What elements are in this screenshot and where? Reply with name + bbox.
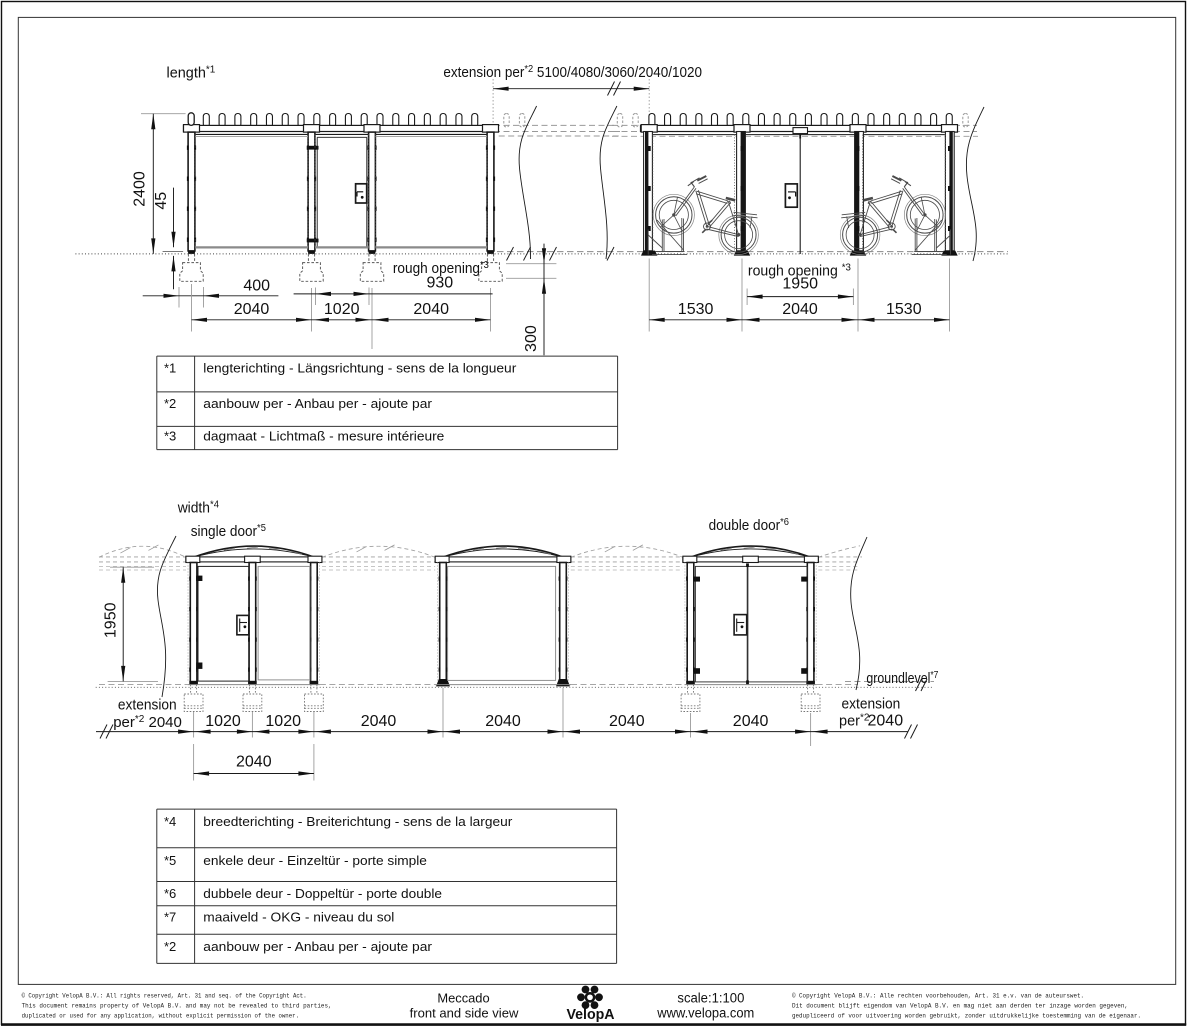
- svg-text:extension: extension: [842, 697, 901, 713]
- svg-text:duplicated or used for any app: duplicated or used for any application, …: [22, 1013, 299, 1020]
- svg-text:*5: *5: [164, 853, 176, 868]
- svg-text:aanbouw per - Anbau per - ajou: aanbouw per - Anbau per - ajoute par: [203, 396, 432, 411]
- svg-text:1530: 1530: [678, 301, 714, 318]
- svg-text:Meccado: Meccado: [437, 990, 489, 1005]
- svg-text:groundlevel*7: groundlevel*7: [866, 670, 938, 687]
- svg-text:dagmaat - Lichtmaß - mesure in: dagmaat - Lichtmaß - mesure intérieure: [203, 429, 444, 444]
- svg-text:gedupliceerd of voor uitvoerin: gedupliceerd of voor uitvoering worden g…: [792, 1013, 1141, 1020]
- svg-text:*6: *6: [164, 886, 176, 901]
- svg-text:1020: 1020: [205, 713, 241, 730]
- svg-text:Dit document blijft eigendom v: Dit document blijft eigendom van VelopA …: [792, 1002, 1128, 1009]
- svg-text:*1: *1: [164, 361, 176, 376]
- svg-text:45: 45: [153, 192, 170, 210]
- svg-text:*7: *7: [164, 910, 176, 925]
- svg-text:lengterichting - Längsrichtung: lengterichting - Längsrichtung - sens de…: [203, 361, 517, 376]
- svg-text:1950: 1950: [102, 602, 119, 638]
- svg-text:2040: 2040: [485, 713, 521, 730]
- svg-text:930: 930: [426, 275, 453, 292]
- svg-text:VelopA: VelopA: [566, 1007, 615, 1023]
- svg-text:aanbouw per - Anbau per - ajou: aanbouw per - Anbau per - ajoute par: [203, 939, 432, 954]
- svg-text:1530: 1530: [886, 301, 922, 318]
- svg-text:maaiveld - OKG - niveau du sol: maaiveld - OKG - niveau du sol: [203, 910, 394, 925]
- svg-text:2040: 2040: [236, 754, 272, 771]
- svg-text:*2: *2: [164, 939, 176, 954]
- svg-text:extension per*2 5100/4080/3060: extension per*2 5100/4080/3060/2040/1020: [443, 64, 702, 81]
- svg-text:2040: 2040: [413, 301, 449, 318]
- svg-text:1950: 1950: [782, 275, 818, 292]
- svg-text:breedterichting - Breiterichtu: breedterichting - Breiterichtung - sens …: [203, 814, 513, 829]
- svg-text:2040: 2040: [733, 713, 769, 730]
- svg-text:single door*5: single door*5: [191, 523, 267, 540]
- svg-text:2040: 2040: [868, 713, 904, 730]
- svg-text:2040: 2040: [782, 301, 818, 318]
- svg-text:per*2 2040: per*2 2040: [113, 714, 182, 731]
- svg-text:*2: *2: [164, 396, 176, 411]
- svg-text:2040: 2040: [234, 301, 270, 318]
- svg-text:© Copyright VelopA B.V.: All r: © Copyright VelopA B.V.: All rights rese…: [22, 991, 307, 999]
- svg-text:enkele deur - Einzeltür - port: enkele deur - Einzeltür - porte simple: [203, 853, 427, 868]
- svg-text:scale:1:100: scale:1:100: [677, 990, 744, 1005]
- svg-text:front and side view: front and side view: [410, 1006, 519, 1021]
- svg-text:www.velopa.com: www.velopa.com: [656, 1006, 754, 1021]
- svg-text:2040: 2040: [609, 713, 645, 730]
- svg-text:double door*6: double door*6: [709, 517, 790, 534]
- svg-text:© Copyright VelopA B.V.: Alle: © Copyright VelopA B.V.: Alle rechten vo…: [792, 991, 1084, 999]
- svg-text:300: 300: [523, 325, 540, 352]
- svg-text:2040: 2040: [361, 713, 397, 730]
- svg-text:dubbele deur - Doppeltür - por: dubbele deur - Doppeltür - porte double: [203, 886, 442, 901]
- svg-text:1020: 1020: [265, 713, 301, 730]
- svg-text:This document remains property: This document remains property of VelopA…: [22, 1002, 332, 1009]
- svg-text:*3: *3: [164, 429, 176, 444]
- svg-text:2400: 2400: [132, 171, 149, 207]
- svg-text:1020: 1020: [324, 301, 360, 318]
- svg-text:400: 400: [243, 277, 270, 294]
- svg-text:extension: extension: [118, 697, 177, 713]
- svg-text:*4: *4: [164, 814, 176, 829]
